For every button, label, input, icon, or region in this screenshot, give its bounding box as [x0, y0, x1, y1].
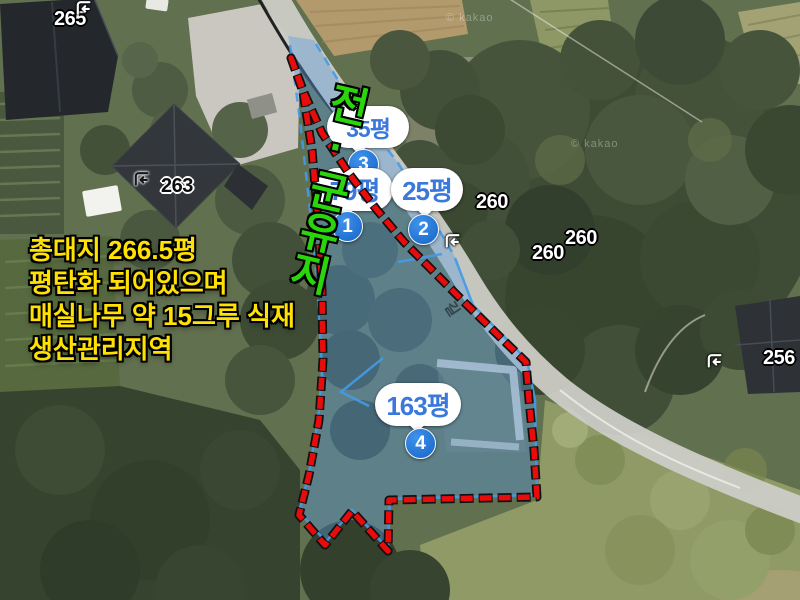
listing-annotation: 총대지 266.5평 평탄화 되어있으며 매실나무 약 15그루 식재 생산관리…	[29, 234, 295, 366]
parcel-number-label: 256	[763, 347, 795, 370]
annotation-line: 평탄화 되어있으며	[29, 267, 295, 300]
map-watermark: © kakao	[446, 12, 494, 24]
parcel-number-label: 260	[476, 191, 508, 214]
building-icon	[132, 169, 151, 188]
building-icon	[705, 351, 724, 370]
parcel-number-label: 260	[565, 227, 597, 250]
parcel-badge[interactable]: 4	[405, 428, 436, 459]
area-marker-pill[interactable]: 163평	[375, 383, 461, 426]
parcel-badge[interactable]: 2	[408, 214, 439, 245]
parcel-number-label: 263	[161, 175, 193, 198]
building-icon	[74, 0, 93, 17]
area-marker-pill[interactable]: 25평	[391, 168, 463, 211]
satellite-map[interactable]: 길 © kakao © kakao 265 263 260 260 260 25…	[0, 0, 800, 600]
parcel-number-label: 260	[532, 242, 564, 265]
map-watermark: © kakao	[571, 138, 619, 150]
annotation-line: 생산관리지역	[29, 333, 295, 366]
building-icon	[443, 231, 462, 250]
annotation-line: 총대지 266.5평	[29, 234, 295, 267]
annotation-line: 매실나무 약 15그루 식재	[29, 300, 295, 333]
